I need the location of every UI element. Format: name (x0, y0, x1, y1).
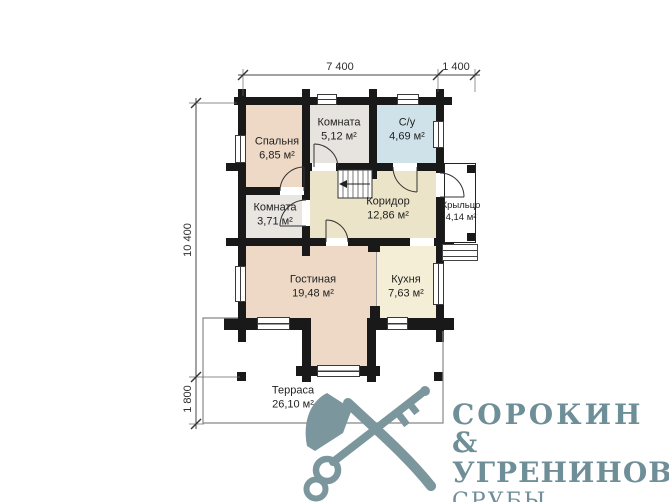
dim-top-porch: 1 400 (442, 61, 470, 73)
room-name: Кухня (388, 273, 424, 287)
room-area: 4,14 м² (442, 212, 481, 224)
room-label-porch: Крыльцо 4,14 м² (442, 200, 481, 224)
room-name: Крыльцо (442, 200, 481, 212)
room-area: 3,71 м² (253, 215, 296, 229)
axe-and-key-icon (306, 386, 436, 499)
room-name: Комната (253, 201, 296, 215)
floor-plan-canvas: Спальня 6,85 м² Комната 5,12 м² С/у 4,69… (0, 0, 669, 502)
room-label-bathroom: С/у 4,69 м² (389, 116, 425, 144)
room-label-kitchen: Кухня 7,63 м² (388, 273, 424, 301)
staircase (338, 170, 372, 198)
room-label-komnata5: Комната 5,12 м² (317, 116, 360, 144)
room-name: Коридор (366, 195, 409, 209)
room-label-komnata3: Комната 3,71 м² (253, 201, 296, 229)
logo-name-line1: СОРОКИН & (452, 401, 664, 457)
room-area: 5,12 м² (317, 130, 360, 144)
room-area: 6,85 м² (255, 149, 299, 163)
room-area: 12,86 м² (366, 209, 409, 223)
room-name: Спальня (255, 135, 299, 149)
dim-left-terrace: 1 800 (182, 385, 194, 413)
room-name: Терраса (272, 384, 314, 398)
room-area: 19,48 м² (290, 287, 336, 301)
dim-left-main: 10 400 (182, 223, 194, 257)
room-label-living: Гостиная 19,48 м² (290, 273, 336, 301)
logo-tagline: СРУБЫ СИБИРИ (452, 488, 664, 502)
room-name: Комната (317, 116, 360, 130)
room-name: С/у (389, 116, 425, 130)
room-area: 7,63 м² (388, 287, 424, 301)
company-logo: СОРОКИН & УГРЕНИНОВ СРУБЫ СИБИРИ (452, 401, 664, 502)
room-label-terrace: Терраса 26,10 м² (272, 384, 314, 412)
room-area: 4,69 м² (389, 130, 425, 144)
room-name: Гостиная (290, 273, 336, 287)
room-area: 26,10 м² (272, 398, 314, 412)
room-label-corridor: Коридор 12,86 м² (366, 195, 409, 223)
dim-top-main: 7 400 (326, 61, 354, 73)
room-label-bedroom: Спальня 6,85 м² (255, 135, 299, 163)
logo-name-line2: УГРЕНИНОВ (452, 457, 664, 488)
